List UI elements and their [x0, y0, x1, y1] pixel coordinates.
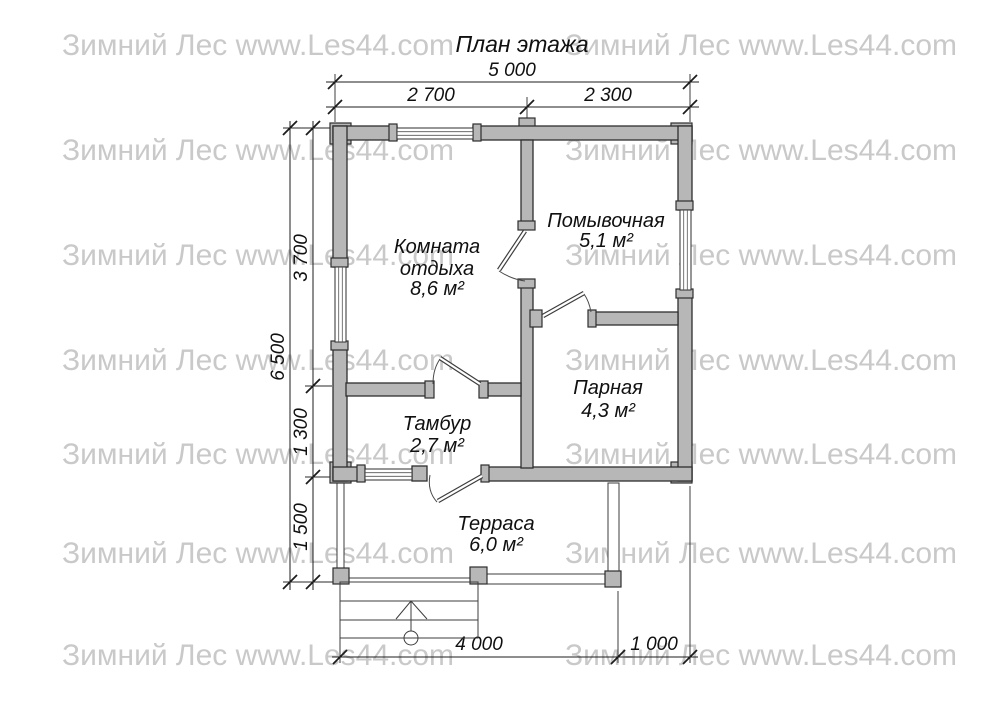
wall-segment	[521, 140, 533, 228]
room-label-steam: Парная	[573, 377, 643, 399]
wall-segment	[678, 290, 692, 481]
door-entrance	[429, 475, 482, 502]
wall-segment	[412, 466, 427, 481]
terrace-post	[605, 571, 621, 587]
dim-left-upper: 3 700	[291, 234, 312, 282]
wall-segment	[473, 126, 692, 140]
watermark-text: Зимний Лес www.Les44.com	[565, 438, 957, 471]
wall-segment	[678, 126, 692, 210]
watermark-text: Зимний Лес www.Les44.com	[565, 639, 957, 672]
wall-cap	[473, 124, 481, 141]
watermark-text: Зимний Лес www.Les44.com	[62, 537, 454, 570]
room-area-wash: 5,1 м²	[579, 230, 634, 252]
wall-cap	[588, 310, 596, 327]
room-label-wash: Помывочная	[547, 210, 665, 232]
dim-left-middle: 1 300	[291, 408, 312, 456]
wall-cap	[331, 258, 348, 267]
dim-top-right: 2 300	[583, 85, 632, 106]
dim-bottom-right: 1 000	[630, 634, 678, 655]
dim-left-lower: 1 500	[291, 503, 312, 551]
room-area-vestibule: 2,7 м²	[409, 435, 465, 457]
watermark-text: Зимний Лес www.Les44.com	[565, 537, 957, 570]
room-label-terrace: Терраса	[457, 513, 534, 535]
dim-left-total: 6 500	[268, 333, 289, 381]
window-bottom	[365, 469, 412, 480]
terrace-railing-right	[608, 483, 619, 571]
watermark-text: Зимний Лес www.Les44.com	[62, 639, 454, 672]
door-rest-to-wash	[499, 231, 525, 281]
room-label-vestibule: Тамбур	[403, 413, 472, 435]
floor-plan-canvas: Зимний Лес www.Les44.com Зимний Лес www.…	[0, 0, 1000, 707]
window-left	[335, 267, 346, 342]
wall-cap	[530, 310, 542, 327]
page-title: План этажа	[455, 31, 588, 57]
wall-segment	[333, 126, 347, 267]
room-label-rest-line1: Комната	[394, 236, 480, 258]
wall-segment	[595, 312, 678, 325]
watermark-text: Зимний Лес www.Les44.com	[565, 29, 957, 62]
wall-segment	[483, 467, 692, 481]
dim-top-left: 2 700	[406, 85, 455, 106]
wall-cap	[389, 124, 397, 141]
terrace-railing-left	[337, 481, 344, 568]
window-top	[397, 128, 473, 139]
floor-plan-page: Зимний Лес www.Les44.com Зимний Лес www.…	[0, 0, 1000, 707]
terrace-railing-bottom	[487, 574, 605, 584]
room-area-steam: 4,3 м²	[581, 400, 636, 422]
room-label-rest-line2: отдыха	[400, 258, 474, 280]
wall-cap	[479, 381, 488, 398]
terrace-post	[470, 567, 487, 584]
room-area-rest: 8,6 м²	[410, 278, 465, 300]
windows	[335, 128, 691, 480]
room-area-terrace: 6,0 м²	[469, 534, 524, 556]
wall-cap	[518, 221, 535, 230]
wall-segment	[488, 383, 521, 396]
wall-cap	[481, 465, 489, 482]
building-walls	[330, 118, 693, 483]
wall-cap	[676, 201, 693, 210]
watermark-text: Зимний Лес www.Les44.com	[62, 29, 454, 62]
wall-segment	[346, 383, 433, 396]
wall-cap	[357, 465, 365, 482]
dim-top-total: 5 000	[488, 60, 536, 81]
door-wash-to-steam	[543, 293, 591, 316]
window-right	[680, 210, 691, 290]
dim-bottom-terrace: 4 000	[455, 634, 503, 655]
watermark-text: Зимний Лес www.Les44.com	[62, 344, 454, 377]
wall-segment	[333, 342, 347, 481]
watermark-text: Зимний Лес www.Les44.com	[565, 344, 957, 377]
watermark-text: Зимний Лес www.Les44.com	[62, 438, 454, 471]
